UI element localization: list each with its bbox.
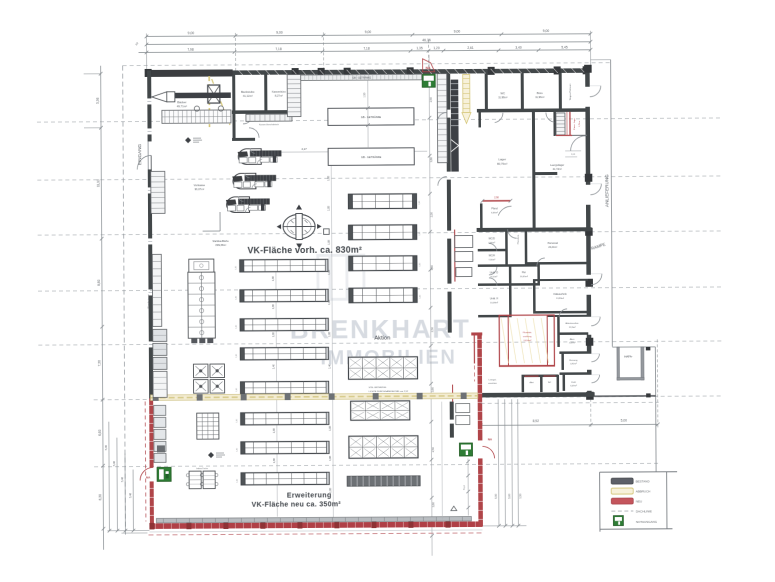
svg-text:7,18: 7,18 bbox=[275, 47, 281, 51]
svg-text:5,76m²: 5,76m² bbox=[578, 121, 581, 127]
svg-text:LICHTE DURCHGANGSHÖHE von 2,5: LICHTE DURCHGANGSHÖHE von 2,52 bbox=[369, 390, 409, 393]
svg-text:2,50: 2,50 bbox=[429, 97, 433, 103]
svg-text:6,60: 6,60 bbox=[98, 429, 102, 435]
svg-text:5,46: 5,46 bbox=[120, 477, 124, 483]
svg-text:1,88: 1,88 bbox=[328, 331, 331, 336]
svg-text:Regal: Regal bbox=[464, 484, 466, 490]
svg-text:7,30m²: 7,30m² bbox=[488, 258, 495, 261]
svg-text:5,00: 5,00 bbox=[507, 493, 511, 499]
svg-text:24,21m²: 24,21m² bbox=[548, 246, 557, 249]
svg-text:3,80: 3,80 bbox=[429, 157, 433, 163]
svg-text:Lager: Lager bbox=[498, 157, 506, 161]
svg-text:GB - GETRÄNKE: GB - GETRÄNKE bbox=[361, 155, 382, 159]
svg-text:1,30: 1,30 bbox=[236, 354, 238, 358]
svg-text:3,40: 3,40 bbox=[515, 46, 521, 50]
svg-text:WC/D: WC/D bbox=[488, 237, 495, 240]
svg-text:STB- UNTERZUG: STB- UNTERZUG bbox=[369, 387, 387, 389]
svg-text:Pfandab-: Pfandab- bbox=[523, 332, 532, 334]
svg-text:3,60: 3,60 bbox=[430, 265, 434, 271]
svg-text:8,80: 8,80 bbox=[97, 279, 101, 285]
svg-text:1,40: 1,40 bbox=[272, 364, 275, 369]
svg-text:Flaschen-: Flaschen- bbox=[518, 234, 520, 244]
svg-text:41,12m²: 41,12m² bbox=[243, 94, 253, 98]
svg-text:12,8m²: 12,8m² bbox=[569, 326, 576, 329]
svg-text:WC: WC bbox=[500, 91, 505, 95]
svg-text:WC/H: WC/H bbox=[489, 254, 496, 257]
svg-text:NOTAUSGANG: NOTAUSGANG bbox=[636, 520, 658, 524]
svg-text:VK-Fläche neu ca. 350m²: VK-Fläche neu ca. 350m² bbox=[252, 501, 342, 509]
svg-text:9,00: 9,00 bbox=[276, 31, 283, 35]
svg-text:2,98: 2,98 bbox=[494, 197, 499, 199]
svg-text:1,30: 1,30 bbox=[236, 325, 238, 329]
svg-text:1,88: 1,88 bbox=[272, 276, 275, 281]
svg-text:Kältetechnik: Kältetechnik bbox=[553, 293, 567, 296]
svg-text:Pfandautomat: Pfandautomat bbox=[147, 294, 150, 308]
svg-text:2,50: 2,50 bbox=[430, 212, 434, 218]
svg-text:VK-Fläche vorh. ca. 830m²: VK-Fläche vorh. ca. 830m² bbox=[247, 245, 362, 256]
svg-text:Marktkauffläche: Marktkauffläche bbox=[213, 240, 230, 243]
svg-text:1,30: 1,30 bbox=[236, 448, 238, 452]
svg-text:1,88: 1,88 bbox=[329, 425, 332, 430]
svg-text:Vorkasse: Vorkasse bbox=[194, 183, 206, 187]
svg-text:annahme: annahme bbox=[488, 383, 498, 385]
svg-text:11,96m²: 11,96m² bbox=[535, 95, 544, 99]
svg-text:WC: WC bbox=[548, 382, 552, 384]
svg-text:8,92: 8,92 bbox=[533, 419, 539, 423]
svg-text:7,06m²: 7,06m² bbox=[488, 241, 495, 244]
svg-text:49,71m²: 49,71m² bbox=[177, 104, 187, 108]
svg-text:1,30: 1,30 bbox=[236, 419, 238, 423]
svg-text:3,60: 3,60 bbox=[431, 502, 435, 508]
svg-text:4,92m²: 4,92m² bbox=[570, 362, 577, 365]
svg-text:13,58m²: 13,58m² bbox=[523, 339, 531, 342]
svg-text:6,06m²: 6,06m² bbox=[491, 211, 498, 214]
svg-text:Büro: Büro bbox=[537, 91, 543, 95]
svg-text:Umkl. D: Umkl. D bbox=[490, 271, 499, 274]
svg-text:Erweiterung: Erweiterung bbox=[287, 492, 332, 499]
svg-text:Arbeitsvorber.: Arbeitsvorber. bbox=[565, 322, 579, 325]
svg-text:1,88: 1,88 bbox=[272, 304, 275, 309]
svg-text:Backstube: Backstube bbox=[241, 90, 255, 94]
svg-text:8,10m²: 8,10m² bbox=[491, 275, 498, 278]
svg-text:7,98: 7,98 bbox=[187, 48, 193, 52]
svg-text:1,30: 1,30 bbox=[419, 263, 421, 267]
svg-text:Imbiss-Tische: Imbiss-Tische bbox=[196, 468, 208, 470]
svg-text:Abst.: Abst. bbox=[570, 338, 575, 341]
svg-text:1,88: 1,88 bbox=[273, 458, 276, 463]
svg-text:1,30: 1,30 bbox=[419, 232, 421, 236]
svg-text:Abst: Abst bbox=[530, 381, 534, 384]
svg-text:ABBRUCH: ABBRUCH bbox=[636, 489, 651, 493]
svg-text:Aktion: Aktion bbox=[374, 335, 390, 341]
svg-text:Kühl: Kühl bbox=[571, 382, 576, 384]
svg-text:9,00: 9,00 bbox=[365, 30, 372, 34]
svg-text:13,99m²: 13,99m² bbox=[556, 297, 564, 300]
svg-text:1,50: 1,50 bbox=[518, 493, 522, 499]
svg-text:96,07m²: 96,07m² bbox=[195, 187, 205, 191]
svg-text:4,27: 4,27 bbox=[301, 147, 307, 151]
svg-text:11,98m²: 11,98m² bbox=[498, 95, 507, 99]
svg-text:1,88: 1,88 bbox=[273, 428, 276, 433]
svg-text:NEU: NEU bbox=[636, 499, 642, 503]
svg-text:3,60: 3,60 bbox=[431, 387, 435, 393]
svg-text:5,00: 5,00 bbox=[621, 419, 627, 423]
svg-text:7,30: 7,30 bbox=[97, 360, 101, 366]
svg-text:Personal: Personal bbox=[548, 241, 559, 245]
svg-text:5,46: 5,46 bbox=[112, 461, 116, 467]
svg-text:Heizung: Heizung bbox=[569, 360, 578, 362]
svg-text:Kassenbüro: Kassenbüro bbox=[272, 90, 286, 94]
svg-text:Leergut-: Leergut- bbox=[489, 378, 497, 381]
svg-text:GB - GETRÄNKE: GB - GETRÄNKE bbox=[352, 77, 371, 80]
svg-text:1,50: 1,50 bbox=[363, 92, 366, 97]
svg-text:Umkl. H: Umkl. H bbox=[490, 297, 499, 300]
svg-text:1,20: 1,20 bbox=[433, 46, 439, 50]
svg-text:7,18: 7,18 bbox=[363, 47, 369, 51]
svg-text:NA: NA bbox=[426, 66, 431, 70]
svg-text:11,10: 11,10 bbox=[96, 179, 100, 187]
svg-text:1,30: 1,30 bbox=[419, 201, 421, 205]
svg-text:6,30: 6,30 bbox=[98, 494, 102, 500]
svg-text:4,09m²: 4,09m² bbox=[569, 341, 576, 344]
svg-text:1,88: 1,88 bbox=[272, 332, 275, 337]
svg-text:DACHLINIE: DACHLINIE bbox=[636, 509, 652, 513]
svg-text:HAFA-: HAFA- bbox=[624, 355, 632, 359]
svg-text:10,08m²: 10,08m² bbox=[490, 301, 498, 304]
svg-text:wicklung: wicklung bbox=[523, 336, 532, 338]
svg-text:Putzm. Lager: Putzm. Lager bbox=[573, 118, 576, 130]
svg-text:2,50: 2,50 bbox=[431, 447, 435, 453]
svg-text:5,50: 5,50 bbox=[494, 493, 498, 499]
svg-text:2,50: 2,50 bbox=[430, 327, 434, 333]
svg-text:1,30: 1,30 bbox=[420, 295, 422, 299]
svg-text:1582,86m²: 1582,86m² bbox=[215, 244, 226, 247]
svg-text:EINGANG: EINGANG bbox=[137, 143, 142, 165]
svg-text:1,35: 1,35 bbox=[416, 46, 422, 50]
svg-text:41,72m²: 41,72m² bbox=[553, 168, 562, 171]
svg-text:5,46: 5,46 bbox=[128, 492, 132, 498]
svg-text:BESTAND: BESTAND bbox=[636, 479, 651, 483]
svg-text:Leergutlager: Leergutlager bbox=[550, 164, 564, 167]
svg-text:8,27m²: 8,27m² bbox=[275, 94, 283, 98]
svg-text:2,61: 2,61 bbox=[467, 46, 473, 50]
svg-text:1,88: 1,88 bbox=[327, 205, 330, 210]
svg-text:9,00: 9,00 bbox=[454, 30, 461, 34]
svg-text:9,00: 9,00 bbox=[543, 29, 550, 33]
svg-text:1,30: 1,30 bbox=[236, 296, 238, 300]
svg-text:ANLIEFERUNG: ANLIEFERUNG bbox=[604, 174, 609, 207]
svg-text:46,36: 46,36 bbox=[422, 38, 431, 42]
svg-text:6,49m²: 6,49m² bbox=[570, 384, 577, 387]
svg-text:GB - GETRÄNKE: GB - GETRÄNKE bbox=[361, 115, 382, 119]
svg-text:5,45: 5,45 bbox=[561, 45, 567, 49]
svg-text:5,36: 5,36 bbox=[96, 97, 100, 103]
svg-text:1,30: 1,30 bbox=[237, 479, 239, 483]
svg-text:Flur: Flur bbox=[522, 271, 526, 274]
svg-text:1,30: 1,30 bbox=[235, 266, 237, 270]
svg-text:9,00: 9,00 bbox=[188, 31, 195, 35]
svg-text:1,30: 1,30 bbox=[236, 388, 238, 392]
svg-text:80,75m²: 80,75m² bbox=[497, 162, 507, 166]
svg-text:1,88: 1,88 bbox=[329, 455, 332, 460]
svg-text:1,88: 1,88 bbox=[327, 175, 330, 180]
svg-text:Pfand: Pfand bbox=[491, 207, 498, 210]
svg-text:1,40: 1,40 bbox=[328, 363, 331, 368]
svg-text:Kassen-Vorschubtisch: Kassen-Vorschubtisch bbox=[259, 123, 279, 126]
svg-text:5,46: 5,46 bbox=[104, 445, 108, 451]
svg-text:16,45m²: 16,45m² bbox=[520, 275, 528, 278]
svg-text:Wagen-Prüfraum: Wagen-Prüfraum bbox=[569, 83, 572, 100]
